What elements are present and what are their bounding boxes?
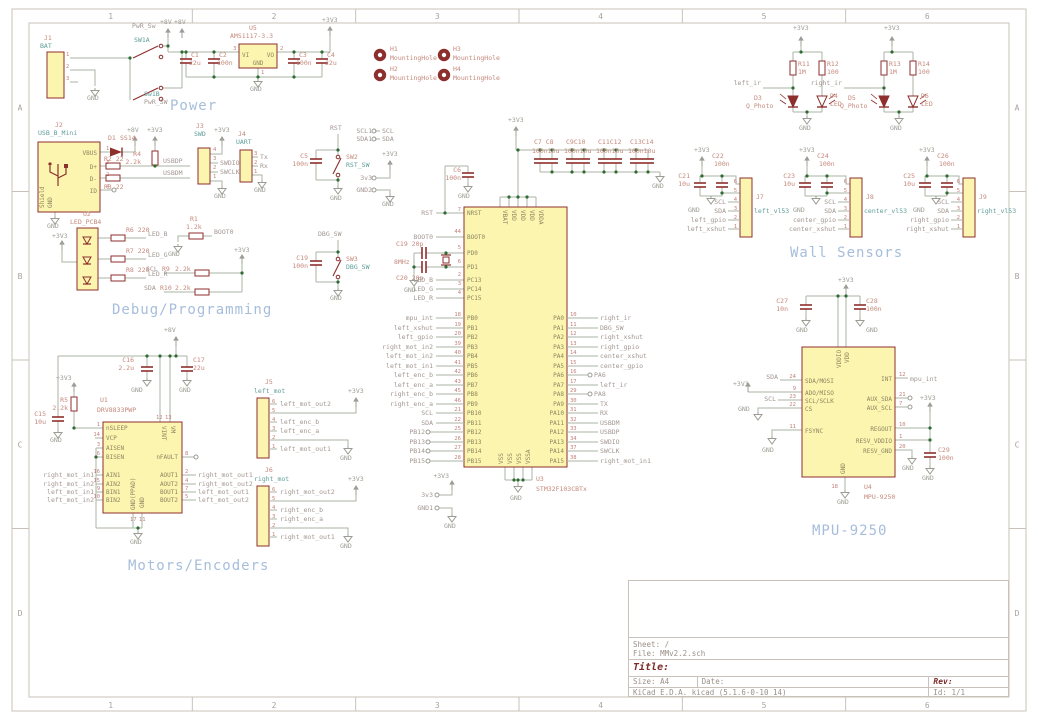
pin-name: PA7 <box>553 382 564 389</box>
switch-symbol[interactable] <box>336 257 340 261</box>
photodiode-symbol-led[interactable] <box>908 96 918 107</box>
switch-symbol[interactable] <box>133 46 158 58</box>
reference-label: R14 <box>918 60 930 68</box>
pin-number: 45 <box>454 388 461 394</box>
pin-name: PB1 <box>467 325 478 332</box>
switch-symbol[interactable] <box>333 260 341 276</box>
photodiode-symbol-led[interactable] <box>817 96 827 107</box>
power-net-label: GND <box>688 206 700 214</box>
resistor-symbol[interactable] <box>910 61 916 75</box>
reference-label: R11 <box>798 60 810 68</box>
reference-label: R13 <box>889 60 901 68</box>
reference-label: 1M <box>889 68 897 76</box>
net-label: right_mot_in2 <box>382 343 433 351</box>
pin-name: VDD <box>844 352 851 363</box>
photodiode-symbol[interactable] <box>879 96 889 107</box>
power-net-label: GND <box>254 186 266 194</box>
pin-name: BOUT2 <box>160 497 178 504</box>
reference-label: R2 22 <box>104 155 124 163</box>
pin-number: 1 <box>213 174 216 180</box>
reference-label: C2 <box>219 51 227 59</box>
frame-coordinate: 1 <box>108 12 113 21</box>
power-flag-symbol[interactable] <box>798 36 804 41</box>
reference-label: C1 <box>191 51 199 59</box>
no-connect-flag <box>372 176 376 180</box>
power-flag-symbol[interactable] <box>165 28 171 33</box>
net-label: USBDM <box>163 169 183 177</box>
power-flag-symbol[interactable] <box>387 160 393 165</box>
reference-label: C21 <box>678 172 690 180</box>
junction-dot <box>153 164 156 167</box>
value-label: RST_SW <box>346 161 370 169</box>
net-label: right_ir <box>811 79 842 87</box>
net-label: LED_R <box>413 294 433 302</box>
junction-dot <box>646 170 649 173</box>
power-flag-symbol[interactable] <box>173 336 179 341</box>
pin-name: VDDIO <box>836 350 843 368</box>
pin-name: GND <box>47 197 54 208</box>
pin-number: 39 <box>454 341 461 347</box>
reference-label: 2.2k <box>175 284 191 292</box>
schematic-sheet[interactable]: 112233445566AABBCCDDJ1BAT123PwR_SwSW1ASw… <box>0 0 1038 720</box>
net-label: left_enc_b <box>394 371 433 379</box>
reference-label: 10u <box>34 418 46 426</box>
power-flag-symbol[interactable] <box>71 382 77 387</box>
pin-name: VCP <box>106 435 117 442</box>
power-flag-symbol[interactable] <box>353 397 359 402</box>
pin-name: PC14 <box>467 286 482 293</box>
reference-label: H1 <box>390 45 398 53</box>
pin-name: PA9 <box>553 401 564 408</box>
pin-name: VSS <box>516 453 523 464</box>
wire <box>772 430 802 436</box>
switch-symbol[interactable] <box>159 55 163 59</box>
power-net-label: GND <box>340 542 352 550</box>
reference-label: 100n <box>819 160 835 168</box>
pin-name: PA6 <box>553 372 564 379</box>
frame-coordinate: 3 <box>435 701 440 710</box>
resistor-symbol[interactable] <box>111 275 125 281</box>
net-label: right_mot_out1 <box>280 533 335 541</box>
pin-number: 18 <box>454 312 461 318</box>
component-body[interactable] <box>850 178 862 237</box>
junction-dot <box>805 110 808 113</box>
net-label: LED_B <box>413 276 433 284</box>
junction-dot <box>634 170 637 173</box>
junction-dot <box>928 438 931 441</box>
power-flag-symbol[interactable] <box>513 126 519 131</box>
net-label: right_enc_a <box>390 400 433 408</box>
power-flag-symbol[interactable] <box>699 156 705 161</box>
pin-number: 12 <box>570 331 577 337</box>
pin-name: VSSA <box>525 449 532 464</box>
pin-name: PB9 <box>467 401 478 408</box>
reference-label: J9 <box>979 193 987 201</box>
net-label: PA6 <box>594 371 606 379</box>
reference-label: H2 <box>390 65 398 73</box>
reference-label: MPU-9250 <box>864 493 895 501</box>
net-label: BOOT0 <box>214 228 234 236</box>
pin-name: AIN2 <box>106 481 121 488</box>
pin-number: 1 <box>261 70 264 76</box>
reference-label: C28 <box>866 297 878 305</box>
pin-name: INT <box>881 376 892 383</box>
pin-number: 26 <box>454 436 461 442</box>
gnd-symbol[interactable] <box>768 439 776 445</box>
power-net-label: GND <box>458 192 470 200</box>
mounting-hole[interactable] <box>440 71 448 79</box>
pin-number: 2 <box>280 46 283 52</box>
junction-dot <box>928 426 931 429</box>
power-flag-symbol[interactable] <box>152 136 158 141</box>
junction-dot <box>720 174 723 177</box>
resistor-symbol[interactable] <box>111 256 125 262</box>
junction-dot <box>240 271 243 274</box>
net-label: RX <box>600 409 608 417</box>
power-net-label: GND <box>340 454 352 462</box>
resistor-symbol[interactable] <box>195 289 209 295</box>
net-label: left_gpio <box>398 333 433 341</box>
title-label: Title: <box>633 662 669 673</box>
power-flag-symbol[interactable] <box>889 36 895 41</box>
pin-name: VDDA <box>537 210 544 225</box>
pin-number: 20 <box>454 331 461 337</box>
power-net-label: GND <box>444 522 456 530</box>
resistor-symbol[interactable] <box>881 61 887 75</box>
power-flag-symbol[interactable] <box>353 485 359 490</box>
no-connect-flag <box>426 440 430 444</box>
pin-number: 10 <box>570 312 577 318</box>
reference-label: 100 <box>918 68 930 76</box>
reference-label: SW2 <box>346 153 358 161</box>
net-label: SCL <box>714 198 726 206</box>
reference-label: C9C10 <box>566 138 586 146</box>
sheet-date: Date: <box>698 677 930 687</box>
reference-label: 1M <box>798 68 806 76</box>
junction-dot <box>791 86 794 89</box>
power-flag-symbol[interactable] <box>924 156 930 161</box>
junction-dot <box>825 191 828 194</box>
reference-label: U2 <box>83 210 91 218</box>
reference-label: R6 220 <box>126 226 150 234</box>
reference-label: MountingHole <box>453 74 500 82</box>
section-title: Wall Sensors <box>790 245 903 261</box>
power-flag-symbol[interactable] <box>219 136 225 141</box>
pin-name: PB15 <box>467 458 482 465</box>
switch-symbol[interactable] <box>159 86 163 90</box>
mounting-hole[interactable] <box>376 51 384 59</box>
pin-number: 32 <box>570 417 577 423</box>
pin-number: 18 <box>831 484 838 490</box>
resistor-symbol[interactable] <box>819 61 825 75</box>
reference-label: J8 <box>866 193 874 201</box>
gnd-symbol[interactable] <box>856 321 864 327</box>
switch-symbol[interactable] <box>159 44 163 48</box>
pin-name: AUX_SCL <box>867 405 893 412</box>
frame-coordinate: 1 <box>108 701 113 710</box>
gnd-symbol[interactable] <box>514 487 522 493</box>
component-body[interactable] <box>802 347 895 477</box>
value-label: left_vl53 <box>754 207 789 215</box>
net-label: SWDIO <box>600 438 620 446</box>
reference-label: 100n10u <box>628 147 655 155</box>
component-body[interactable] <box>47 52 64 98</box>
pin-name: PA13 <box>550 439 565 446</box>
reference-label: H4 <box>453 65 461 73</box>
power-net-label: GND <box>796 326 808 334</box>
reference-label: 100n10u <box>596 147 623 155</box>
pin-number: 40 <box>454 350 461 356</box>
net-label: mpu_int <box>910 375 937 383</box>
power-flag-symbol[interactable] <box>804 156 810 161</box>
pin-name: BOUT1 <box>160 489 178 496</box>
reference-label: U5 <box>249 24 257 32</box>
reference-label: STM32F103CBTx <box>536 485 587 493</box>
no-connect-flag <box>588 392 592 396</box>
frame-coordinate: C <box>1015 440 1020 449</box>
frame-coordinate: 5 <box>762 701 767 710</box>
reference-label: C13C14 <box>630 138 654 146</box>
pin-number: 46 <box>454 398 461 404</box>
pin-number: 42 <box>454 369 461 375</box>
component-body[interactable] <box>963 178 975 237</box>
pin-name: PB14 <box>467 448 482 455</box>
switch-symbol[interactable] <box>336 155 340 159</box>
net-label: left_gpio <box>691 216 726 224</box>
resistor-symbol[interactable] <box>189 233 203 239</box>
component-body[interactable] <box>257 398 269 458</box>
resistor-symbol[interactable] <box>195 270 209 276</box>
mounting-hole[interactable] <box>376 71 384 79</box>
component-body[interactable] <box>198 148 210 184</box>
reference-label: 100n10u <box>532 147 559 155</box>
wire <box>439 508 452 514</box>
power-flag-symbol[interactable] <box>59 240 65 245</box>
reference-label: C26 <box>937 152 949 160</box>
power-net-label: GND <box>214 192 226 200</box>
net-label: USBDP <box>600 428 620 436</box>
power-flag-symbol[interactable] <box>239 254 245 259</box>
pin-name: PA5 <box>553 363 564 370</box>
pin-number: 22 <box>454 417 461 423</box>
resistor-symbol[interactable] <box>111 235 125 241</box>
resistor-symbol[interactable] <box>71 397 77 411</box>
junction-dot <box>882 86 885 89</box>
reference-label: 2.2u <box>118 364 134 372</box>
pin-name: VO <box>267 52 275 59</box>
no-connect-flag <box>194 455 198 459</box>
photodiode-arrow-icon <box>780 94 786 99</box>
pin-number: 4 <box>458 290 462 296</box>
pin-number: 6 <box>957 179 960 185</box>
power-flag-symbol[interactable] <box>449 480 455 485</box>
junction-dot <box>550 170 553 173</box>
switch-symbol[interactable] <box>336 275 340 279</box>
junction-dot <box>720 191 723 194</box>
power-flag-symbol[interactable] <box>843 284 849 289</box>
junction-dot <box>168 354 171 357</box>
junction-dot <box>507 195 510 198</box>
pin-name: PB11 <box>467 420 482 427</box>
power-net-label: +8V <box>164 326 176 334</box>
reference-label: 100 <box>827 68 839 76</box>
reference-label: 2.2k <box>52 404 68 412</box>
junction-dot <box>136 526 139 529</box>
junction-dot <box>180 50 183 53</box>
net-label: SWCLK <box>220 168 240 176</box>
pin-name: PA12 <box>550 429 565 436</box>
power-net-label: GND <box>250 85 262 93</box>
reference-label: 2.2k <box>125 158 141 166</box>
pin-number: 1 <box>66 52 69 58</box>
junction-dot <box>825 174 828 177</box>
reference-label: 100n <box>938 454 954 462</box>
junction-dot <box>336 148 339 151</box>
photodiode-symbol[interactable] <box>788 96 798 107</box>
junction-dot <box>890 50 893 53</box>
crystal-symbol[interactable] <box>443 257 449 263</box>
pin-name: REGOUT <box>870 426 892 433</box>
reference-label: C24 <box>817 152 829 160</box>
power-flag-symbol[interactable] <box>927 402 933 407</box>
component-body[interactable] <box>240 150 252 182</box>
resistor-symbol[interactable] <box>152 151 158 165</box>
junction-dot <box>412 265 415 268</box>
power-net-label: GND <box>168 250 180 258</box>
pin-name: AOUT1 <box>160 472 178 479</box>
reference-label: D5 <box>848 94 856 102</box>
junction-dot <box>336 178 339 181</box>
component-body[interactable] <box>257 486 269 546</box>
reference-label: R9 <box>162 265 170 273</box>
pin-name: VDD <box>519 210 526 221</box>
no-connect-flag <box>908 405 912 409</box>
power-flag-symbol[interactable] <box>179 28 185 33</box>
junction-dot <box>166 44 169 47</box>
power-net-label: GND <box>330 294 342 302</box>
reference-label: C25 <box>903 172 915 180</box>
pin-number: 6 <box>458 259 461 265</box>
power-net-label: +3V3 <box>348 475 364 483</box>
component-body[interactable] <box>464 207 567 467</box>
power-net-label: +3V3 <box>56 374 72 382</box>
title-block-size-row: Size: A4 Date: Rev: <box>629 677 1008 688</box>
no-connect-flag <box>588 373 592 377</box>
net-label: left_mot_out2 <box>280 400 331 408</box>
power-net-label: +8V <box>174 18 186 26</box>
resistor-symbol[interactable] <box>790 61 796 75</box>
pin-number: 37 <box>570 445 577 451</box>
pin-name: PC15 <box>467 295 482 302</box>
pin-name: ID <box>90 188 98 195</box>
no-connect-flag <box>372 188 376 192</box>
pin-number: 16 <box>570 369 577 375</box>
junction-dot <box>945 191 948 194</box>
power-net-label: +3V3 <box>838 276 854 284</box>
power-net-label: GND <box>913 206 925 214</box>
pin-name: BOOT0 <box>467 234 485 241</box>
junction-dot <box>128 56 131 59</box>
pin-number: 14 <box>93 432 100 438</box>
pin-number: 10 <box>93 494 100 500</box>
power-net-label: GND <box>47 222 59 230</box>
pin-name: PB3 <box>467 344 478 351</box>
switch-symbol[interactable] <box>333 158 341 174</box>
pin-number: 12 <box>156 415 163 421</box>
reference-label: 100n10u <box>564 147 591 155</box>
component-body[interactable] <box>740 178 752 237</box>
reference-label: 100n <box>292 262 308 270</box>
reference-label: MountingHole <box>390 54 437 62</box>
pin-name: PB6 <box>467 372 478 379</box>
sheet-size: Size: A4 <box>629 677 698 687</box>
power-flag-symbol[interactable] <box>327 26 333 31</box>
pin-number: 6 <box>844 179 847 185</box>
power-net-label: GND <box>922 474 934 482</box>
power-net-label: GND <box>510 494 522 502</box>
gnd-symbol[interactable] <box>754 415 762 421</box>
section-title: Power <box>170 98 217 114</box>
net-label: left_enc_a <box>394 381 433 389</box>
pin-name: PD1 <box>467 264 478 271</box>
frame-coordinate: B <box>1015 272 1020 281</box>
net-label: TX <box>600 400 608 408</box>
net-label: RST <box>421 209 433 217</box>
pin-number: 3 <box>66 76 69 82</box>
power-net-label: GND <box>738 405 750 413</box>
power-net-label: +3V3 <box>919 146 935 154</box>
mounting-hole[interactable] <box>440 51 448 59</box>
net-label: 3v3 <box>421 491 433 499</box>
reference-label: J2 <box>55 121 63 129</box>
net-label: right_enc_b <box>280 506 323 514</box>
title-block: Sheet: / File: MMv2.2.sch Title: Size: A… <box>628 580 1009 697</box>
net-label: left_mot_out2 <box>198 496 249 504</box>
power-net-label: +3V3 <box>322 16 338 24</box>
switch-symbol[interactable] <box>336 173 340 177</box>
net-label: SDA <box>382 135 394 143</box>
wire <box>70 70 95 86</box>
reference-label: U1 <box>100 396 108 404</box>
reference-label: 22u <box>189 59 201 67</box>
junction-dot <box>805 174 808 177</box>
junction-dot <box>256 75 259 78</box>
pin-name: PA1 <box>553 325 564 332</box>
section-title: MPU-9250 <box>812 523 887 539</box>
power-net-label: GND <box>793 206 805 214</box>
reference-label: R3 22 <box>104 183 124 191</box>
junction-dot <box>799 50 802 53</box>
junction-dot <box>570 170 573 173</box>
power-net-label: GND <box>179 386 191 394</box>
frame-coordinate: 6 <box>925 12 930 21</box>
gnd-symbol[interactable] <box>812 199 820 205</box>
gnd-symbol[interactable] <box>143 381 151 387</box>
pin-name: VDD <box>510 210 517 221</box>
net-label: USBDM <box>600 419 620 427</box>
net-label: LED_G <box>148 251 168 259</box>
power-net-label: +3V3 <box>214 126 230 134</box>
frame-coordinate: 6 <box>925 701 930 710</box>
pin-name: AISEN <box>106 445 124 452</box>
pin-name: VDD <box>528 210 535 221</box>
net-label: right_enc_b <box>390 390 433 398</box>
pin-name: Shield <box>39 186 46 208</box>
net-label: center_xshut <box>600 352 647 360</box>
power-net-label: GND <box>50 436 62 444</box>
pin-number: 2 <box>254 160 257 166</box>
photodiode-arrow-icon <box>871 100 877 104</box>
